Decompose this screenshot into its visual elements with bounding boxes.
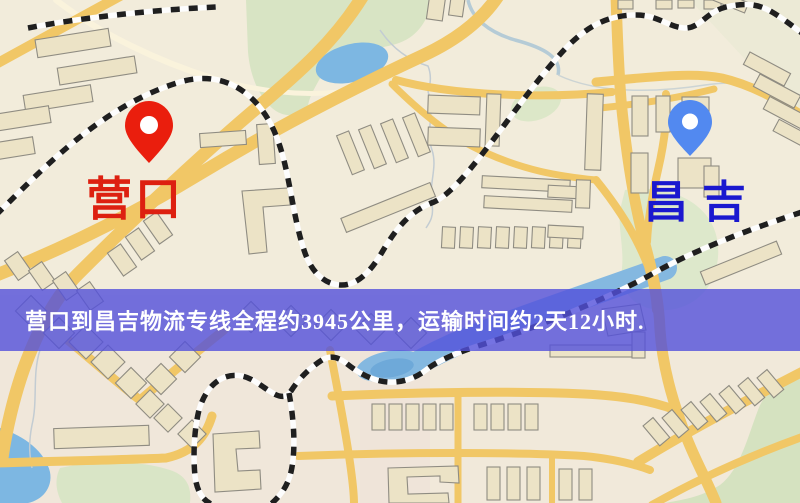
- map-screenshot: 营口到昌吉物流专线全程约3945公里，运输时间约2天12小时. 营口 昌吉: [0, 0, 800, 503]
- origin-city-label: 营口: [86, 176, 184, 222]
- route-info-text: 营口到昌吉物流专线全程约3945公里，运输时间约2天12小时.: [25, 304, 645, 336]
- destination-city-label: 昌吉: [644, 181, 760, 225]
- origin-pin-icon: [119, 98, 179, 168]
- destination-pin-icon: [663, 97, 717, 159]
- route-info-banner: 营口到昌吉物流专线全程约3945公里，运输时间约2天12小时.: [0, 289, 800, 351]
- map-image: [0, 0, 800, 503]
